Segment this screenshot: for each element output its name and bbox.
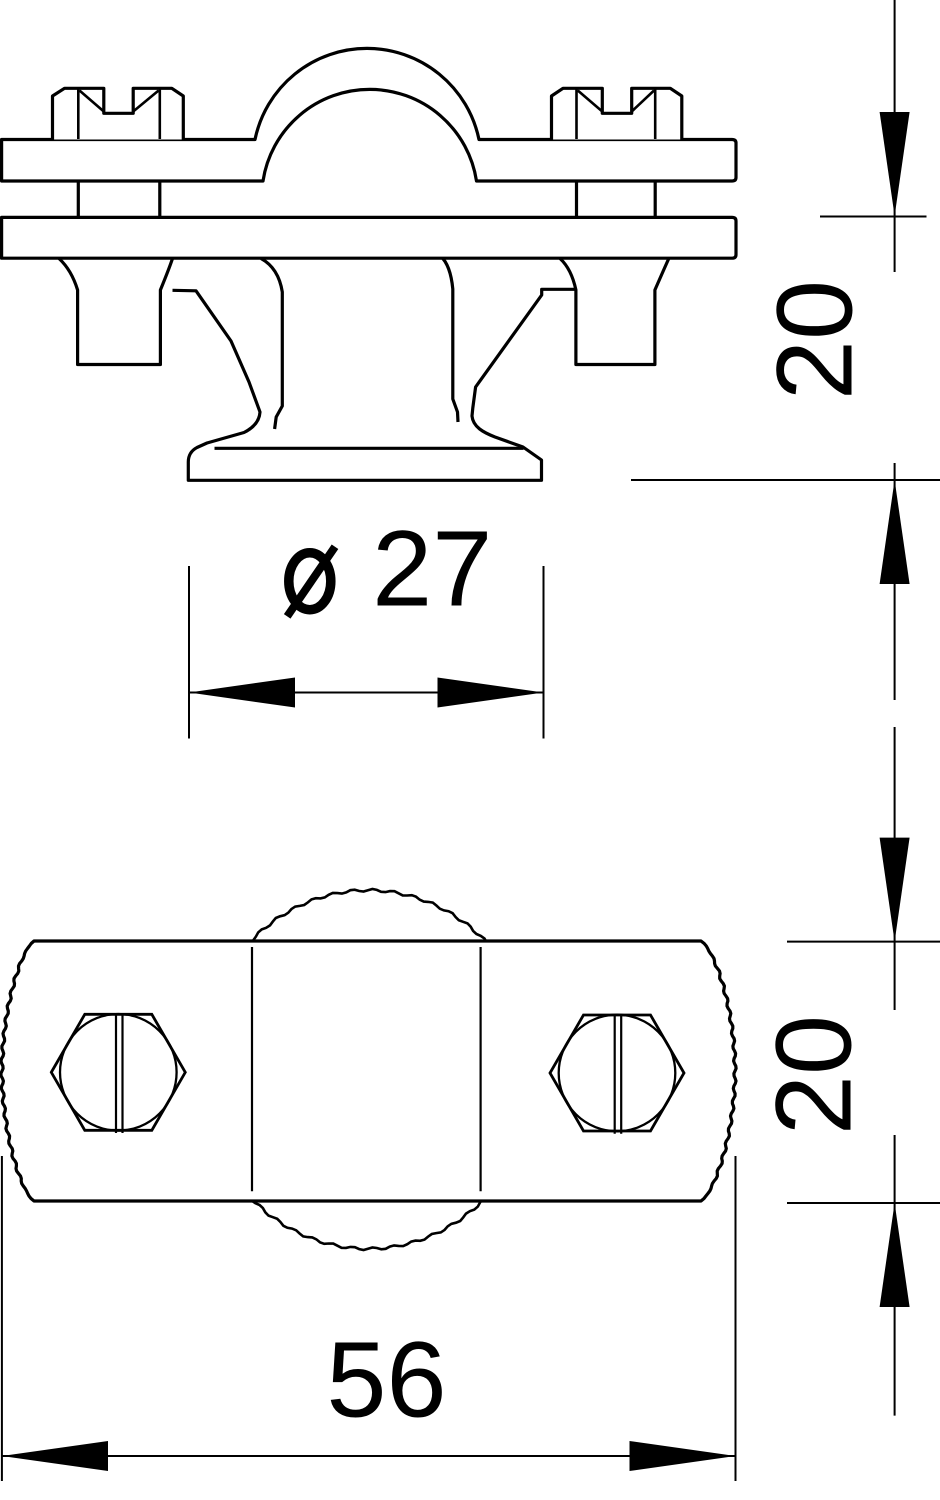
svg-text:20: 20: [753, 1015, 874, 1135]
svg-text:56: 56: [326, 1319, 446, 1440]
svg-text:20: 20: [754, 280, 875, 400]
svg-text:27: 27: [372, 508, 492, 629]
